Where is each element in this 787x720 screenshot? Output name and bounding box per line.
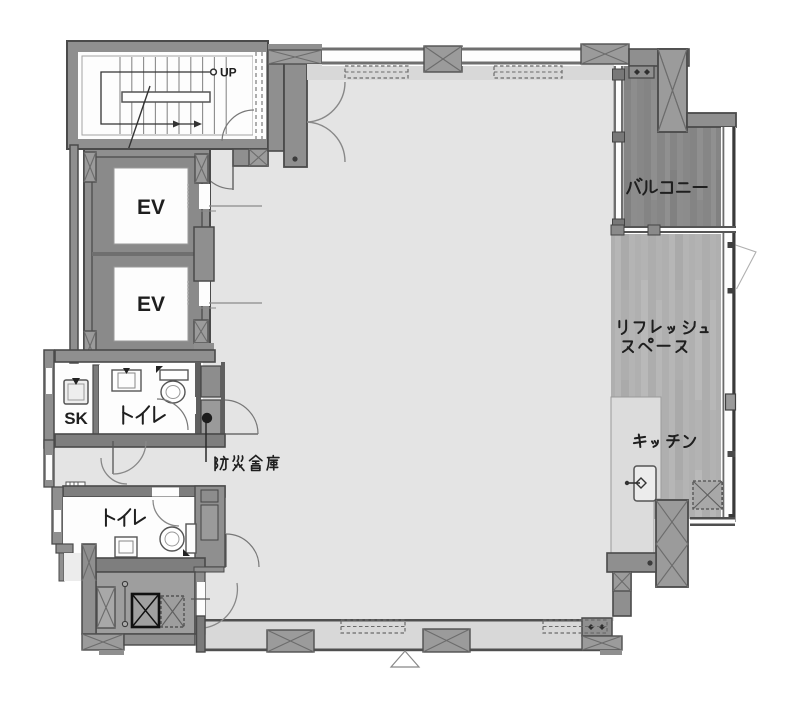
svg-text:EV: EV xyxy=(137,293,165,316)
svg-text:UP: UP xyxy=(220,66,237,80)
svg-text:EV: EV xyxy=(137,196,165,219)
svg-text:SK: SK xyxy=(64,409,88,428)
